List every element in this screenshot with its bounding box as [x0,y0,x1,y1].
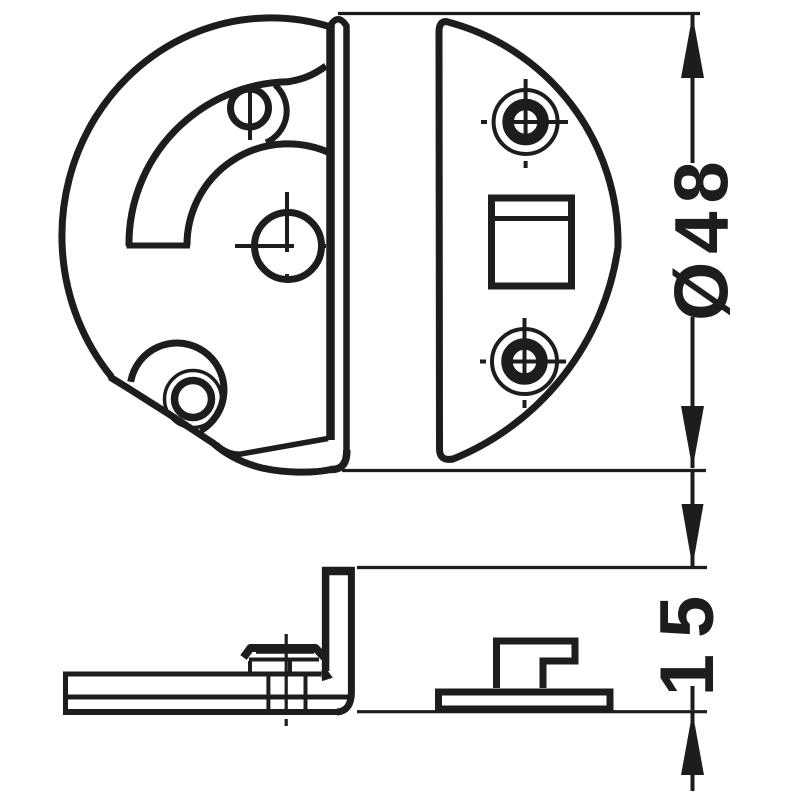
svg-text:15: 15 [645,580,730,697]
svg-text:Ø48: Ø48 [660,153,745,321]
